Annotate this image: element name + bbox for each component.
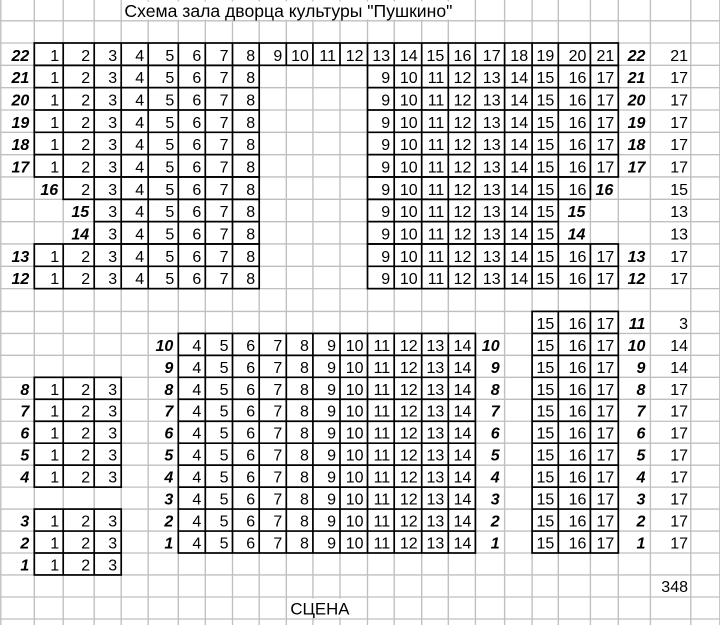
svg-text:1: 1 <box>50 70 59 87</box>
svg-text:15: 15 <box>71 204 90 221</box>
svg-text:16: 16 <box>569 492 587 509</box>
svg-text:11: 11 <box>428 226 445 243</box>
svg-text:13: 13 <box>427 448 445 465</box>
svg-text:1: 1 <box>50 514 59 531</box>
svg-text:12: 12 <box>454 182 472 199</box>
svg-text:3: 3 <box>108 536 117 553</box>
svg-text:15: 15 <box>670 182 688 199</box>
svg-text:2: 2 <box>81 448 90 465</box>
svg-text:16: 16 <box>569 159 587 176</box>
svg-text:22: 22 <box>11 48 30 65</box>
svg-text:15: 15 <box>537 536 555 553</box>
svg-text:17: 17 <box>670 92 688 109</box>
svg-text:10: 10 <box>400 204 418 221</box>
svg-text:9: 9 <box>381 249 390 266</box>
svg-text:22: 22 <box>627 48 646 65</box>
svg-text:8: 8 <box>300 536 309 553</box>
svg-text:8: 8 <box>300 492 309 509</box>
svg-text:7: 7 <box>491 404 501 421</box>
svg-text:5: 5 <box>165 182 174 199</box>
svg-text:13: 13 <box>670 204 688 221</box>
svg-text:11: 11 <box>374 448 391 465</box>
svg-text:3: 3 <box>164 492 173 509</box>
svg-text:11: 11 <box>374 492 391 509</box>
svg-text:5: 5 <box>636 448 646 465</box>
svg-text:9: 9 <box>273 48 282 65</box>
svg-text:6: 6 <box>246 536 255 553</box>
svg-text:8: 8 <box>246 226 255 243</box>
svg-text:10: 10 <box>156 338 174 355</box>
svg-text:12: 12 <box>400 382 418 399</box>
svg-text:4: 4 <box>135 159 144 176</box>
svg-text:16: 16 <box>569 182 587 199</box>
svg-text:7: 7 <box>220 249 229 266</box>
svg-text:11: 11 <box>428 92 445 109</box>
svg-text:17: 17 <box>670 249 688 266</box>
svg-text:8: 8 <box>246 271 255 288</box>
svg-text:2: 2 <box>81 92 90 109</box>
svg-text:6: 6 <box>246 492 255 509</box>
svg-text:17: 17 <box>670 536 688 553</box>
svg-text:7: 7 <box>273 470 282 487</box>
svg-text:14: 14 <box>454 382 472 399</box>
svg-text:1: 1 <box>636 536 645 553</box>
svg-text:17: 17 <box>12 159 31 176</box>
svg-text:1: 1 <box>50 404 59 421</box>
svg-text:15: 15 <box>537 514 555 531</box>
svg-text:12: 12 <box>400 536 418 553</box>
svg-text:5: 5 <box>220 426 229 443</box>
svg-text:8: 8 <box>491 382 500 399</box>
svg-text:15: 15 <box>537 182 555 199</box>
svg-text:7: 7 <box>273 492 282 509</box>
svg-text:16: 16 <box>569 360 587 377</box>
svg-text:10: 10 <box>400 271 418 288</box>
svg-text:17: 17 <box>670 382 688 399</box>
svg-text:4: 4 <box>163 470 173 487</box>
svg-text:1: 1 <box>50 115 59 132</box>
svg-text:10: 10 <box>628 338 646 355</box>
svg-text:15: 15 <box>537 249 555 266</box>
svg-text:7: 7 <box>273 448 282 465</box>
svg-text:4: 4 <box>192 338 201 355</box>
svg-text:3: 3 <box>108 470 117 487</box>
svg-text:12: 12 <box>400 338 418 355</box>
svg-text:17: 17 <box>597 137 615 154</box>
svg-text:17: 17 <box>670 271 688 288</box>
svg-text:10: 10 <box>346 382 364 399</box>
svg-text:7: 7 <box>273 404 282 421</box>
svg-text:14: 14 <box>510 70 528 87</box>
svg-text:1: 1 <box>50 48 59 65</box>
svg-text:2: 2 <box>81 115 90 132</box>
svg-text:13: 13 <box>427 360 445 377</box>
svg-text:13: 13 <box>483 159 501 176</box>
svg-text:5: 5 <box>220 536 229 553</box>
svg-text:15: 15 <box>537 448 555 465</box>
svg-text:14: 14 <box>71 226 89 243</box>
svg-text:2: 2 <box>81 249 90 266</box>
svg-text:1: 1 <box>20 557 29 574</box>
svg-text:9: 9 <box>636 360 645 377</box>
svg-text:17: 17 <box>597 514 615 531</box>
svg-text:17: 17 <box>670 514 688 531</box>
svg-text:3: 3 <box>108 426 117 443</box>
svg-text:8: 8 <box>246 159 255 176</box>
svg-text:9: 9 <box>327 338 336 355</box>
svg-text:15: 15 <box>537 360 555 377</box>
svg-text:6: 6 <box>246 382 255 399</box>
svg-text:14: 14 <box>454 470 472 487</box>
svg-text:10: 10 <box>400 137 418 154</box>
svg-text:8: 8 <box>636 382 645 399</box>
svg-text:17: 17 <box>483 48 501 65</box>
svg-text:СЦЕНА: СЦЕНА <box>290 600 350 619</box>
svg-text:14: 14 <box>510 182 528 199</box>
svg-text:13: 13 <box>483 137 501 154</box>
svg-text:10: 10 <box>400 159 418 176</box>
svg-text:4: 4 <box>135 226 144 243</box>
svg-text:15: 15 <box>427 48 445 65</box>
svg-text:7: 7 <box>220 204 229 221</box>
svg-text:3: 3 <box>20 514 29 531</box>
svg-text:11: 11 <box>428 249 445 266</box>
svg-text:1: 1 <box>50 470 59 487</box>
svg-text:Схема зала дворца культуры "Пу: Схема зала дворца культуры "Пушкино" <box>124 1 452 21</box>
svg-text:16: 16 <box>569 115 587 132</box>
svg-text:17: 17 <box>670 70 688 87</box>
svg-text:6: 6 <box>192 226 201 243</box>
svg-text:5: 5 <box>20 448 30 465</box>
svg-text:17: 17 <box>597 316 615 333</box>
svg-text:1: 1 <box>50 536 59 553</box>
svg-text:16: 16 <box>569 271 587 288</box>
svg-text:4: 4 <box>192 536 201 553</box>
svg-text:16: 16 <box>569 338 587 355</box>
svg-text:14: 14 <box>510 92 528 109</box>
svg-text:9: 9 <box>381 137 390 154</box>
svg-text:1: 1 <box>50 557 59 574</box>
svg-text:15: 15 <box>537 338 555 355</box>
svg-text:11: 11 <box>319 48 336 65</box>
svg-text:6: 6 <box>246 404 255 421</box>
svg-text:4: 4 <box>135 182 144 199</box>
svg-text:4: 4 <box>135 271 144 288</box>
svg-text:10: 10 <box>346 514 364 531</box>
svg-text:15: 15 <box>537 316 555 333</box>
svg-text:16: 16 <box>569 382 587 399</box>
svg-text:3: 3 <box>679 316 688 333</box>
svg-text:2: 2 <box>81 137 90 154</box>
svg-text:2: 2 <box>81 182 90 199</box>
svg-text:7: 7 <box>220 48 229 65</box>
svg-text:15: 15 <box>537 470 555 487</box>
svg-text:15: 15 <box>537 204 555 221</box>
svg-text:17: 17 <box>670 159 688 176</box>
svg-text:13: 13 <box>483 115 501 132</box>
svg-text:2: 2 <box>635 514 645 531</box>
svg-text:9: 9 <box>381 226 390 243</box>
svg-text:8: 8 <box>246 249 255 266</box>
svg-text:17: 17 <box>597 70 615 87</box>
svg-text:4: 4 <box>192 360 201 377</box>
svg-text:2: 2 <box>81 536 90 553</box>
svg-text:10: 10 <box>400 115 418 132</box>
svg-text:4: 4 <box>192 426 201 443</box>
svg-text:12: 12 <box>346 48 364 65</box>
svg-text:17: 17 <box>597 360 615 377</box>
svg-text:6: 6 <box>246 470 255 487</box>
svg-text:17: 17 <box>670 448 688 465</box>
svg-text:7: 7 <box>220 92 229 109</box>
svg-text:17: 17 <box>597 249 615 266</box>
svg-text:6: 6 <box>164 426 173 443</box>
svg-text:17: 17 <box>597 382 615 399</box>
svg-text:18: 18 <box>510 48 528 65</box>
svg-text:13: 13 <box>483 226 501 243</box>
svg-text:15: 15 <box>537 492 555 509</box>
svg-text:5: 5 <box>165 271 174 288</box>
svg-text:14: 14 <box>454 338 472 355</box>
svg-text:7: 7 <box>273 360 282 377</box>
svg-text:3: 3 <box>108 70 117 87</box>
svg-text:4: 4 <box>19 470 29 487</box>
svg-text:1: 1 <box>491 536 500 553</box>
svg-text:16: 16 <box>569 470 587 487</box>
svg-text:13: 13 <box>427 492 445 509</box>
svg-text:4: 4 <box>192 448 201 465</box>
svg-text:11: 11 <box>374 536 391 553</box>
svg-text:9: 9 <box>327 448 336 465</box>
svg-text:10: 10 <box>346 338 364 355</box>
svg-text:4: 4 <box>135 249 144 266</box>
svg-text:1: 1 <box>50 159 59 176</box>
svg-text:6: 6 <box>192 115 201 132</box>
svg-text:3: 3 <box>108 226 117 243</box>
svg-text:17: 17 <box>597 338 615 355</box>
svg-text:9: 9 <box>164 360 173 377</box>
svg-text:8: 8 <box>300 470 309 487</box>
svg-text:13: 13 <box>483 271 501 288</box>
svg-text:4: 4 <box>135 204 144 221</box>
svg-text:12: 12 <box>454 137 472 154</box>
svg-text:11: 11 <box>428 159 445 176</box>
svg-text:15: 15 <box>537 382 555 399</box>
svg-text:8: 8 <box>300 426 309 443</box>
svg-text:16: 16 <box>569 404 587 421</box>
svg-text:6: 6 <box>246 514 255 531</box>
svg-text:5: 5 <box>165 115 174 132</box>
svg-text:9: 9 <box>327 536 336 553</box>
svg-text:13: 13 <box>483 70 501 87</box>
svg-text:14: 14 <box>454 426 472 443</box>
svg-text:4: 4 <box>192 514 201 531</box>
svg-text:14: 14 <box>510 137 528 154</box>
svg-text:19: 19 <box>12 115 30 132</box>
svg-text:21: 21 <box>597 48 615 65</box>
svg-text:4: 4 <box>192 404 201 421</box>
svg-text:14: 14 <box>510 249 528 266</box>
svg-text:1: 1 <box>50 249 59 266</box>
svg-text:6: 6 <box>192 159 201 176</box>
svg-text:14: 14 <box>510 204 528 221</box>
svg-text:3: 3 <box>636 492 645 509</box>
svg-text:8: 8 <box>164 382 173 399</box>
svg-text:13: 13 <box>483 204 501 221</box>
svg-text:14: 14 <box>454 514 472 531</box>
svg-text:2: 2 <box>81 426 90 443</box>
svg-text:10: 10 <box>346 536 364 553</box>
svg-text:3: 3 <box>108 182 117 199</box>
svg-text:6: 6 <box>192 249 201 266</box>
svg-text:12: 12 <box>454 92 472 109</box>
svg-text:17: 17 <box>670 115 688 132</box>
svg-text:14: 14 <box>670 338 688 355</box>
svg-text:16: 16 <box>569 448 587 465</box>
svg-text:13: 13 <box>427 536 445 553</box>
svg-text:3: 3 <box>108 137 117 154</box>
svg-text:11: 11 <box>629 316 646 333</box>
svg-text:17: 17 <box>597 92 615 109</box>
svg-text:16: 16 <box>569 514 587 531</box>
svg-text:8: 8 <box>246 182 255 199</box>
svg-text:3: 3 <box>108 271 117 288</box>
svg-text:13: 13 <box>12 249 30 266</box>
svg-text:11: 11 <box>428 70 445 87</box>
svg-text:17: 17 <box>670 492 688 509</box>
svg-text:4: 4 <box>135 92 144 109</box>
svg-text:7: 7 <box>220 226 229 243</box>
svg-text:12: 12 <box>454 204 472 221</box>
svg-text:17: 17 <box>670 137 688 154</box>
svg-text:7: 7 <box>220 182 229 199</box>
svg-text:16: 16 <box>569 426 587 443</box>
svg-text:8: 8 <box>246 204 255 221</box>
svg-text:9: 9 <box>381 182 390 199</box>
svg-text:4: 4 <box>135 48 144 65</box>
svg-text:4: 4 <box>192 492 201 509</box>
svg-text:8: 8 <box>300 514 309 531</box>
svg-text:12: 12 <box>454 115 472 132</box>
svg-text:3: 3 <box>108 159 117 176</box>
svg-text:12: 12 <box>400 426 418 443</box>
svg-text:9: 9 <box>327 382 336 399</box>
svg-text:1: 1 <box>50 137 59 154</box>
svg-text:12: 12 <box>400 514 418 531</box>
svg-text:10: 10 <box>346 426 364 443</box>
svg-text:16: 16 <box>596 182 614 199</box>
svg-text:15: 15 <box>568 204 587 221</box>
svg-text:3: 3 <box>491 492 500 509</box>
svg-text:17: 17 <box>597 470 615 487</box>
svg-text:8: 8 <box>246 70 255 87</box>
svg-text:9: 9 <box>327 426 336 443</box>
svg-text:4: 4 <box>135 137 144 154</box>
svg-text:8: 8 <box>246 92 255 109</box>
svg-text:1: 1 <box>50 92 59 109</box>
svg-text:6: 6 <box>192 48 201 65</box>
svg-text:6: 6 <box>192 182 201 199</box>
svg-text:14: 14 <box>670 360 688 377</box>
svg-text:17: 17 <box>597 404 615 421</box>
svg-text:348: 348 <box>661 579 688 596</box>
svg-text:5: 5 <box>220 514 229 531</box>
svg-text:17: 17 <box>670 470 688 487</box>
svg-text:6: 6 <box>246 360 255 377</box>
svg-text:11: 11 <box>428 137 445 154</box>
svg-text:17: 17 <box>597 448 615 465</box>
svg-text:12: 12 <box>454 271 472 288</box>
svg-text:6: 6 <box>246 338 255 355</box>
svg-text:10: 10 <box>346 404 364 421</box>
svg-text:16: 16 <box>569 92 587 109</box>
svg-text:8: 8 <box>300 382 309 399</box>
svg-text:12: 12 <box>454 70 472 87</box>
svg-text:3: 3 <box>108 249 117 266</box>
svg-text:6: 6 <box>246 426 255 443</box>
svg-text:3: 3 <box>108 448 117 465</box>
svg-text:5: 5 <box>165 48 174 65</box>
svg-text:5: 5 <box>165 249 174 266</box>
svg-text:12: 12 <box>454 249 472 266</box>
svg-text:5: 5 <box>220 492 229 509</box>
svg-text:8: 8 <box>246 137 255 154</box>
svg-text:18: 18 <box>628 137 646 154</box>
svg-text:5: 5 <box>491 448 501 465</box>
svg-text:9: 9 <box>327 514 336 531</box>
svg-text:11: 11 <box>374 470 391 487</box>
svg-text:12: 12 <box>400 448 418 465</box>
svg-text:6: 6 <box>20 426 29 443</box>
svg-text:5: 5 <box>165 70 174 87</box>
svg-text:10: 10 <box>346 448 364 465</box>
svg-text:14: 14 <box>568 226 586 243</box>
svg-text:2: 2 <box>490 514 500 531</box>
svg-text:8: 8 <box>300 404 309 421</box>
svg-text:1: 1 <box>50 426 59 443</box>
svg-text:2: 2 <box>81 557 90 574</box>
svg-text:14: 14 <box>400 48 418 65</box>
svg-text:13: 13 <box>670 226 688 243</box>
svg-text:13: 13 <box>427 426 445 443</box>
svg-text:14: 14 <box>510 271 528 288</box>
svg-text:13: 13 <box>483 92 501 109</box>
svg-text:4: 4 <box>192 470 201 487</box>
svg-text:1: 1 <box>50 448 59 465</box>
svg-text:11: 11 <box>374 382 391 399</box>
svg-text:19: 19 <box>537 48 555 65</box>
svg-text:5: 5 <box>165 226 174 243</box>
svg-text:3: 3 <box>108 92 117 109</box>
svg-text:20: 20 <box>627 92 646 109</box>
svg-text:7: 7 <box>164 404 174 421</box>
svg-text:9: 9 <box>327 470 336 487</box>
svg-text:12: 12 <box>628 271 646 288</box>
svg-text:21: 21 <box>670 48 688 65</box>
svg-text:9: 9 <box>327 404 336 421</box>
svg-text:9: 9 <box>381 115 390 132</box>
svg-text:12: 12 <box>400 470 418 487</box>
svg-text:14: 14 <box>454 536 472 553</box>
svg-text:17: 17 <box>597 536 615 553</box>
svg-text:13: 13 <box>483 182 501 199</box>
svg-text:6: 6 <box>491 426 500 443</box>
svg-text:14: 14 <box>510 226 528 243</box>
svg-text:6: 6 <box>192 70 201 87</box>
svg-text:5: 5 <box>165 137 174 154</box>
svg-text:2: 2 <box>81 514 90 531</box>
svg-text:16: 16 <box>569 70 587 87</box>
